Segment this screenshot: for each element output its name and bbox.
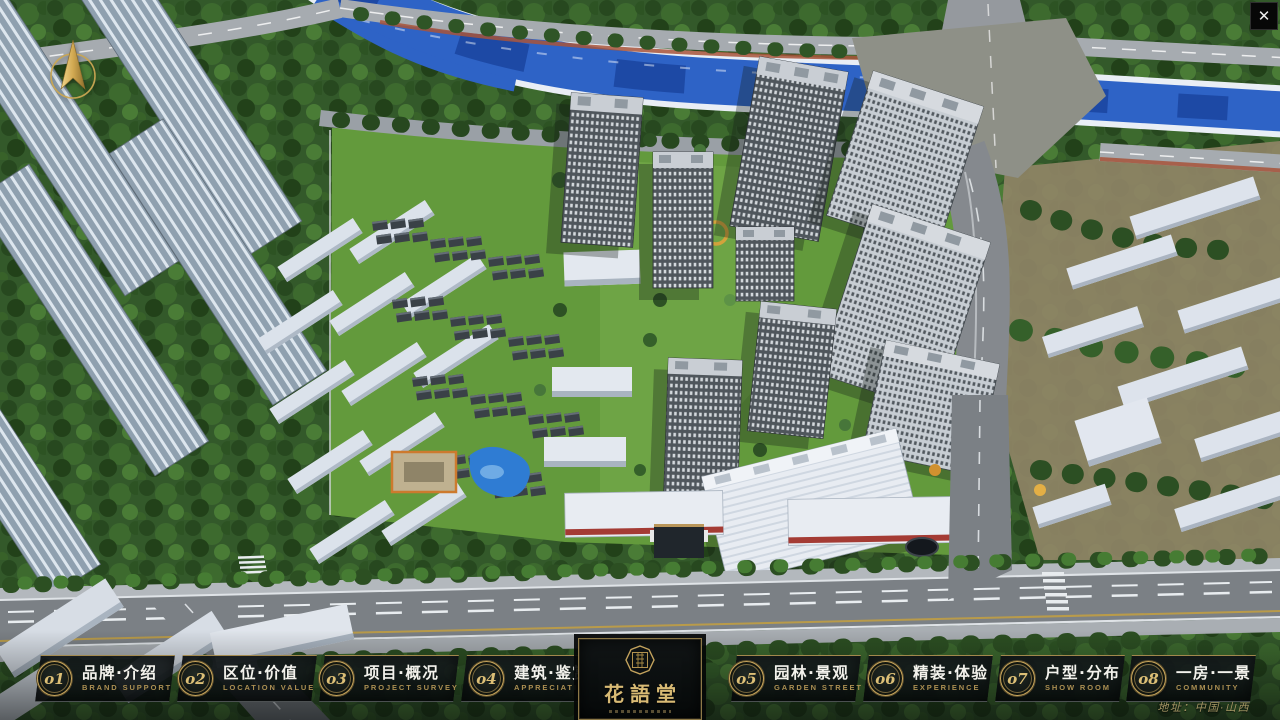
nav-item-room-view[interactable]: o8 一房·一景 COMMUNITY [1126, 655, 1256, 702]
nav-label-en: LOCATION VALUE [223, 684, 315, 692]
logo-title: 花語堂 [604, 678, 682, 707]
nav-item-garden-landscape[interactable]: o5 园林·景观 GARDEN STREET [731, 655, 861, 702]
close-button[interactable]: ✕ [1250, 2, 1278, 30]
item-number-badge: o7 [999, 661, 1034, 696]
logo-caption-line [609, 710, 671, 713]
nav-label-zh: 品牌·介绍 [82, 666, 172, 682]
nav-label-zh: 户型·分布 [1044, 666, 1119, 682]
nav-label-en: COMMUNITY [1176, 684, 1251, 692]
close-icon: ✕ [1258, 9, 1271, 24]
nav-label-en: EXPERIENCE [912, 684, 987, 692]
nav-label-en: SHOW ROOM [1044, 684, 1119, 692]
item-number-badge: o8 [1131, 661, 1166, 696]
item-number-badge: o4 [469, 661, 504, 696]
item-number-badge: o1 [37, 661, 72, 696]
nav-item-brand-intro[interactable]: o1 品牌·介绍 BRAND SUPPORT [35, 655, 175, 702]
nav-label-zh: 精装·体验 [912, 666, 987, 682]
nav-label-zh: 一房·一景 [1176, 666, 1251, 682]
nav-label-zh: 园林·景观 [774, 666, 863, 682]
masterplan-viewer: ✕ o1 品牌·介绍 BRAND SUPPORT o2 区位·价值 LOCATI… [0, 0, 1280, 720]
item-number-badge: o5 [729, 661, 764, 696]
nav-label-en: GARDEN STREET [774, 684, 863, 692]
clubhouse [392, 452, 456, 492]
seal-icon [625, 645, 655, 675]
item-number-badge: o6 [867, 661, 902, 696]
nav-item-location-value[interactable]: o2 区位·价值 LOCATION VALUE [177, 655, 317, 702]
project-logo[interactable]: 花語堂 [578, 638, 702, 720]
gate-water-feature [906, 538, 938, 556]
nav-label-en: PROJECT SURVEY [364, 684, 459, 692]
nav-label-en: BRAND SUPPORT [82, 684, 172, 692]
project-address: 地址：中国·山西 [1157, 699, 1250, 715]
nav-label-zh: 区位·价值 [223, 666, 315, 682]
item-number-badge: o2 [178, 661, 213, 696]
item-number-badge: o3 [319, 661, 354, 696]
nav-item-interior-experience[interactable]: o6 精装·体验 EXPERIENCE [863, 655, 993, 702]
nav-item-floorplan-distribution[interactable]: o7 户型·分布 SHOW ROOM [995, 655, 1125, 702]
nav-label-zh: 项目·概况 [364, 666, 459, 682]
site-plan-render [0, 0, 1280, 720]
main-gate [650, 524, 708, 558]
nav-group-right: o5 园林·景观 GARDEN STREET o6 精装·体验 EXPERIEN… [734, 655, 1253, 702]
nav-group-left: o1 品牌·介绍 BRAND SUPPORT o2 区位·价值 LOCATION… [38, 655, 598, 702]
nav-item-project-overview[interactable]: o3 项目·概况 PROJECT SURVEY [319, 655, 459, 702]
